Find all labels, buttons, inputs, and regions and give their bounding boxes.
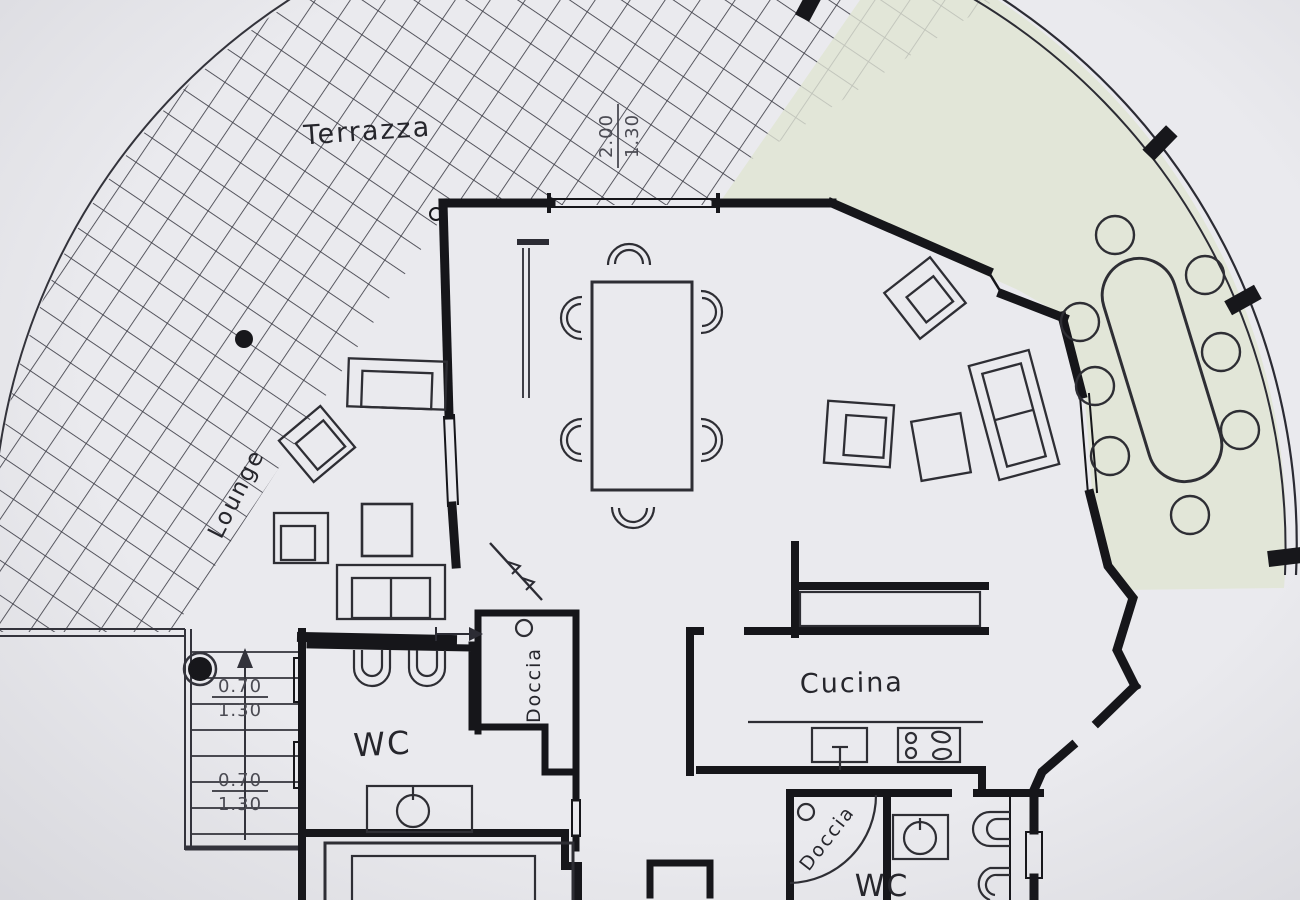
lounge-sofa-top [347,358,447,409]
shower-drain [516,620,532,636]
floor-plan-canvas: Terrazza Lounge 2.00 1.30 0.70 1.30 0.70… [0,0,1300,900]
toilet [979,868,1010,900]
kitchen-peninsula-counter [800,592,980,626]
burner [933,748,952,760]
room-label-shower-upper: Doccia [523,647,545,723]
room-label-wc-right: WC [855,869,910,900]
kitchen: Cucina [748,592,983,770]
dimension-stairs-lower-width: 0.70 [218,770,262,791]
room-label-wc-left: WC [352,724,412,765]
burner [931,730,951,744]
dimension-stairs-lower-height: 1.30 [218,794,262,815]
bedroom-partial [325,843,573,900]
dining-chair [561,297,582,339]
bed-mattress [352,856,535,900]
toilet [354,650,390,686]
building-walls [294,195,1135,900]
dining-chair [701,419,722,461]
dining-chair [612,507,654,528]
window-southeast [1026,832,1042,878]
staircase: 0.70 1.30 0.70 1.30 [184,629,302,850]
shower-drain [798,804,814,820]
lounge-armchair [274,513,328,563]
wc-right-room: WC [855,812,1010,900]
stove [898,728,960,762]
dining-table [592,282,692,490]
window-west [444,415,458,506]
room-label-kitchen: Cucina [800,667,904,700]
hall-closet [650,863,710,895]
side-table [911,413,971,481]
armchair-tilted-right [884,257,965,338]
dining-chair [608,244,650,265]
armchair-right [824,401,894,467]
toilet [973,812,1010,846]
terrace-column [235,330,253,348]
stair-up-arrow [237,648,253,668]
door-swing-mark [490,543,542,600]
dimension-terrace-door-height: 1.30 [622,114,643,158]
sofa-right [969,350,1059,480]
plan-marks [436,242,549,641]
dimension-stairs-upper-width: 0.70 [218,676,262,697]
terrace-hatched-paving [0,0,860,632]
lounge-sofa-bottom [337,565,445,619]
dimension-terrace-door-width: 2.00 [596,114,617,158]
window-hall [572,800,580,836]
dining-set [561,244,722,528]
burner [906,748,916,758]
kitchen-sink [812,728,867,770]
room-label-shower-lower: Doccia [795,802,859,875]
wc-left-room: WC [352,650,472,832]
dining-chair [701,291,722,333]
bathroom-sink [893,815,948,859]
stair-column [188,657,212,681]
coffee-table [362,504,412,556]
burner [906,733,916,743]
dining-chair [561,419,582,461]
shower-room-upper: Doccia [516,620,545,723]
bathroom-sink [367,786,472,832]
floor-plan-page: Terrazza Lounge 2.00 1.30 0.70 1.30 0.70… [0,0,1300,900]
dimension-stairs-upper-height: 1.30 [218,700,262,721]
toilet [409,650,445,686]
bay-window-line [523,248,529,398]
